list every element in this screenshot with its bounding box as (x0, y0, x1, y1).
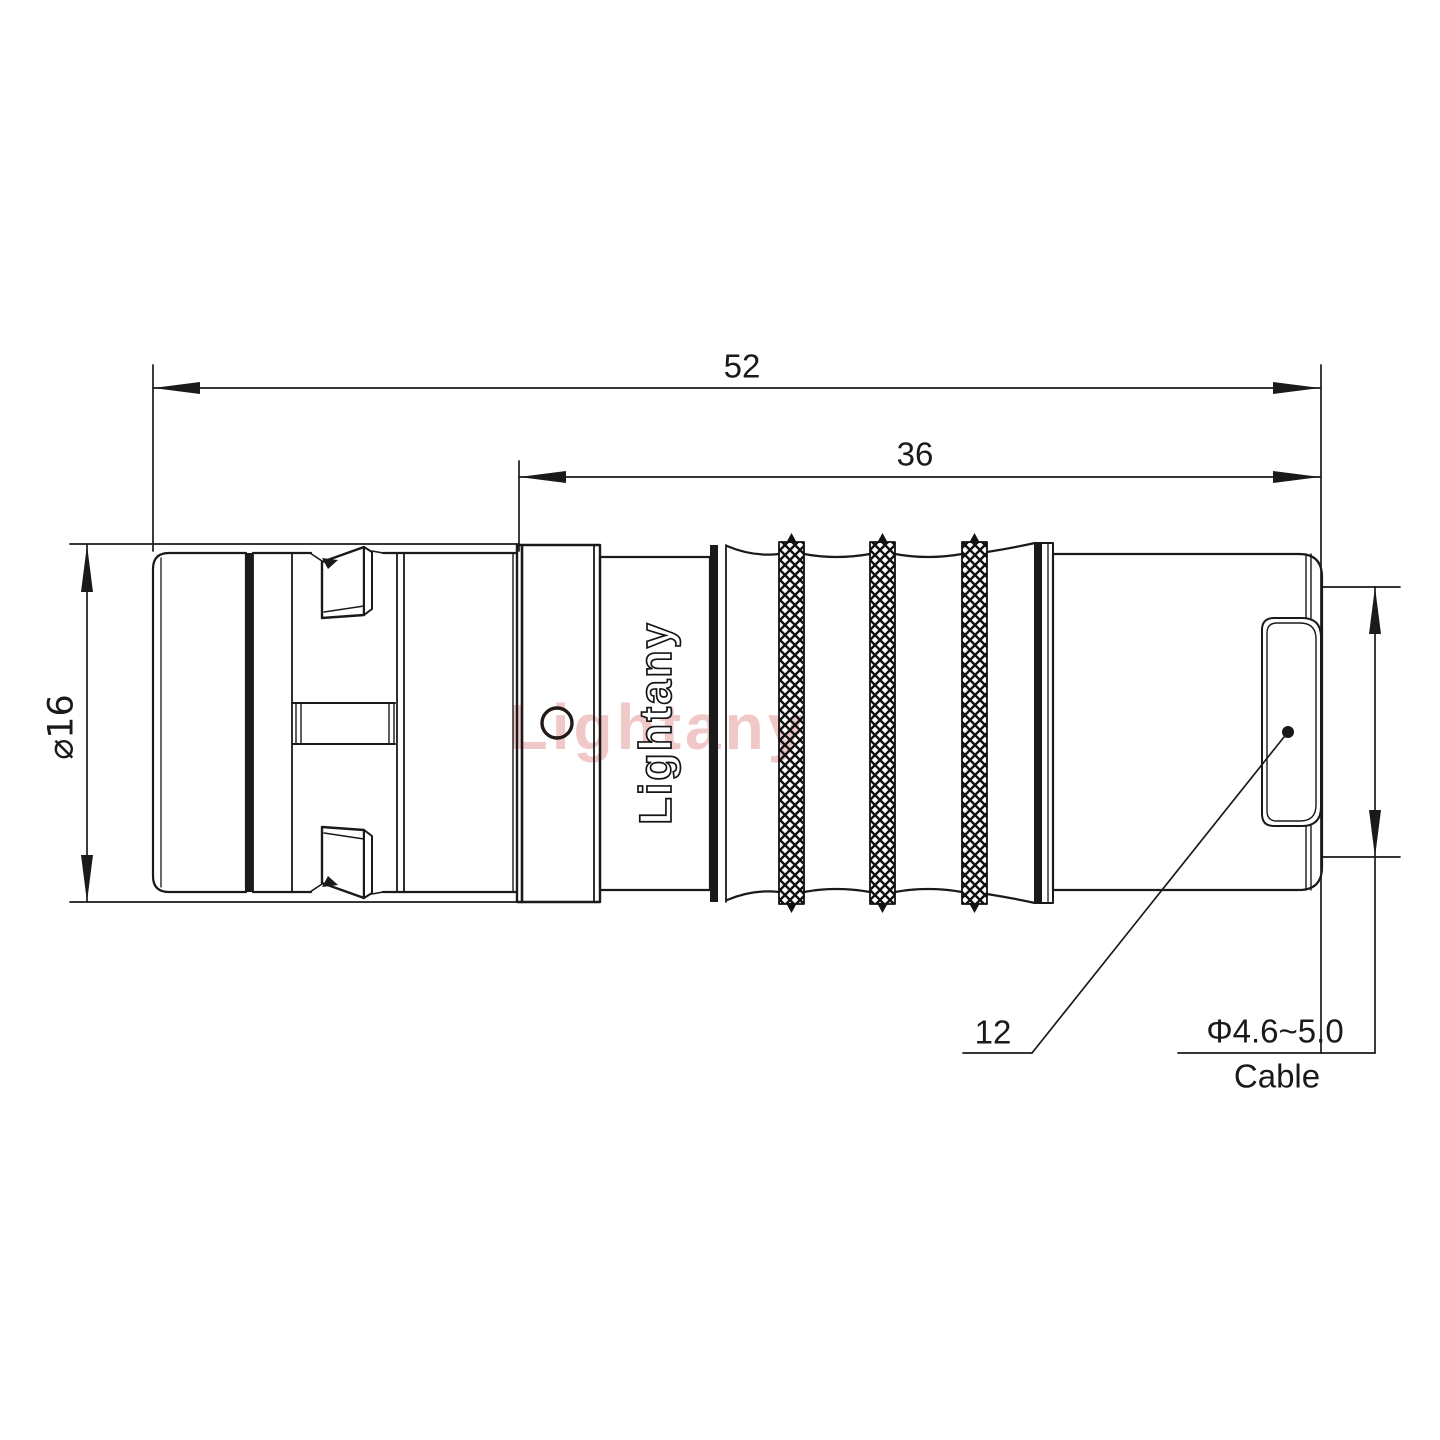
leader-dot (1282, 726, 1294, 738)
rear-cap (1053, 554, 1322, 890)
bayonet-body (253, 547, 404, 898)
coupling-sleeve (153, 553, 253, 892)
dimension-label-36: 36 (897, 438, 934, 471)
connector-outline (153, 533, 1322, 913)
guide-band (292, 703, 395, 744)
separator-ring (710, 545, 726, 902)
rear-flange (1035, 543, 1053, 903)
dimension-36 (519, 461, 1320, 551)
knurled-barrel (727, 533, 1035, 913)
dimension-label-12: 12 (975, 1016, 1012, 1049)
bayonet-tab-bottom (310, 827, 383, 898)
cable-word-label: Cable (1234, 1060, 1320, 1093)
knurl-band (962, 533, 987, 913)
connector-technical-drawing (0, 0, 1440, 1440)
engraved-brand-text: Lightany (630, 621, 682, 825)
dimension-label-diameter-16: ⌀16 (45, 694, 80, 760)
vent-hole (542, 708, 572, 738)
bayonet-tab-top (310, 547, 383, 618)
dimension-52 (153, 365, 1320, 551)
drawing-canvas: Lightany (0, 0, 1440, 1440)
cable-spec-label: Φ4.6~5.0 (1206, 1015, 1343, 1048)
knurl-band (779, 533, 804, 913)
dimension-12 (1322, 587, 1400, 1053)
mid-section (404, 553, 517, 892)
dimension-diameter-16 (70, 544, 519, 902)
dimension-label-52: 52 (724, 350, 761, 383)
knurl-band (870, 533, 895, 913)
collar (517, 545, 600, 902)
